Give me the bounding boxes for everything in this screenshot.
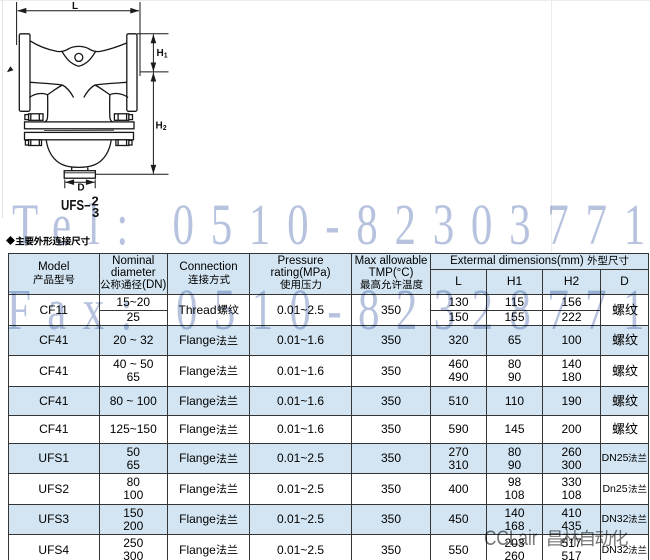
svg-text:L: L bbox=[72, 1, 78, 12]
svg-text:D: D bbox=[77, 183, 84, 194]
svg-text:H2: H2 bbox=[156, 121, 167, 133]
svg-text:H1: H1 bbox=[157, 48, 168, 60]
